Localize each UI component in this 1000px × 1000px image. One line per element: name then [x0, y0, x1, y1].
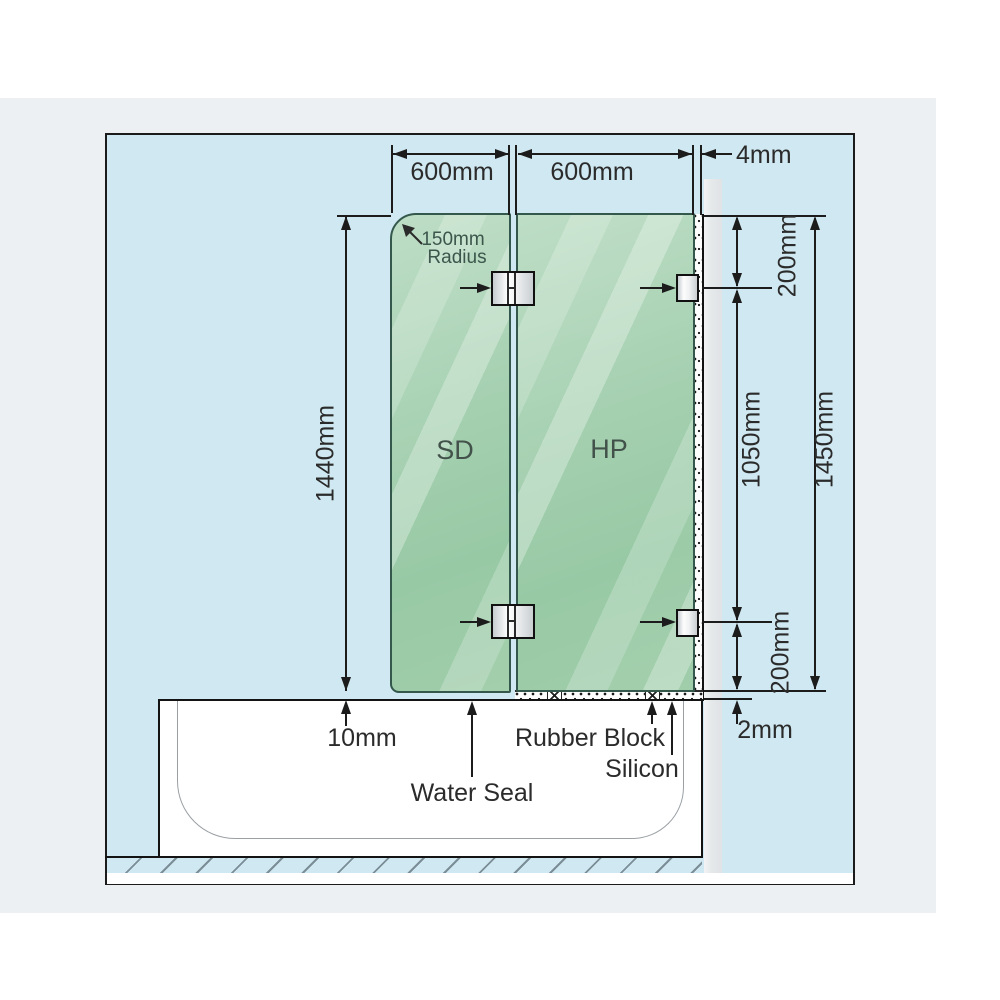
dim-label-bottom-gap: 2mm [730, 716, 800, 745]
dim-label-width-sd: 600mm [400, 158, 504, 187]
dim-line-width-hp [518, 153, 692, 155]
wall-bracket-bottom [676, 609, 699, 637]
dim-label-wall-gap: 4mm [736, 141, 816, 170]
arrowhead-icon [810, 216, 820, 230]
dim-label-height-sd: 1440mm [312, 394, 341, 514]
arrowhead-icon [810, 676, 820, 690]
arrowhead-icon [732, 607, 742, 621]
ext-line-glass-right [692, 145, 694, 215]
arrowhead-icon [702, 149, 716, 159]
arrowhead-icon [732, 273, 742, 287]
ref-line-tub-top [704, 698, 752, 700]
hinge-bottom-knuckle [507, 620, 516, 622]
bracket-top-pointer-arrow-icon [662, 283, 676, 293]
ref-line-glass-top [704, 215, 826, 217]
ext-line-divider-right [515, 145, 517, 215]
arrowhead-icon [341, 216, 351, 230]
dim-label-width-hp: 600mm [527, 158, 657, 187]
rubber-block-label: Rubber Block [512, 724, 668, 753]
dim-label-offset-bottom: 200mm [767, 598, 796, 708]
dim-label-offset-top: 200mm [774, 201, 803, 311]
installation-diagram: SD HP 150mm Radius 600mm 600mm [0, 0, 1000, 1000]
hinge-bottom-pointer-arrow-icon [477, 617, 491, 627]
arrowhead-icon [732, 623, 742, 637]
bracket-bottom-pointer-arrow-icon [662, 617, 676, 627]
panel-label-hp: HP [569, 434, 649, 465]
radius-note-word: Radius [421, 248, 493, 267]
silicon-label: Silicon [575, 755, 709, 784]
hinge-top-knuckle [507, 287, 516, 289]
arrowhead-icon [732, 289, 742, 303]
bracket-top-pointer-line [640, 287, 664, 289]
arrowhead-icon [732, 676, 742, 690]
dim-label-tub-gap: 10mm [320, 724, 404, 753]
arrowhead-icon [678, 149, 692, 159]
panel-label-sd: SD [415, 435, 495, 466]
bracket-bottom-pointer-line [640, 621, 664, 623]
rubber-block-pointer-line [651, 713, 653, 724]
water-seal-label: Water Seal [400, 779, 544, 808]
silicon-pointer-line [671, 713, 673, 755]
hinge-top-pointer-arrow-icon [477, 283, 491, 293]
wall-bracket-top [676, 274, 699, 302]
dim-line-height-sd [345, 217, 347, 691]
arrowhead-icon [341, 677, 351, 691]
floor-white-band [107, 873, 853, 884]
dim-label-height-hp: 1450mm [811, 375, 840, 505]
water-seal-pointer-line [471, 713, 473, 777]
arrowhead-icon [732, 216, 742, 230]
dim-line-width-sd [393, 153, 509, 155]
floor-hatch [107, 858, 702, 873]
ref-line-glass-bottom [704, 690, 826, 692]
dim-label-bracket-span: 1050mm [738, 375, 767, 505]
